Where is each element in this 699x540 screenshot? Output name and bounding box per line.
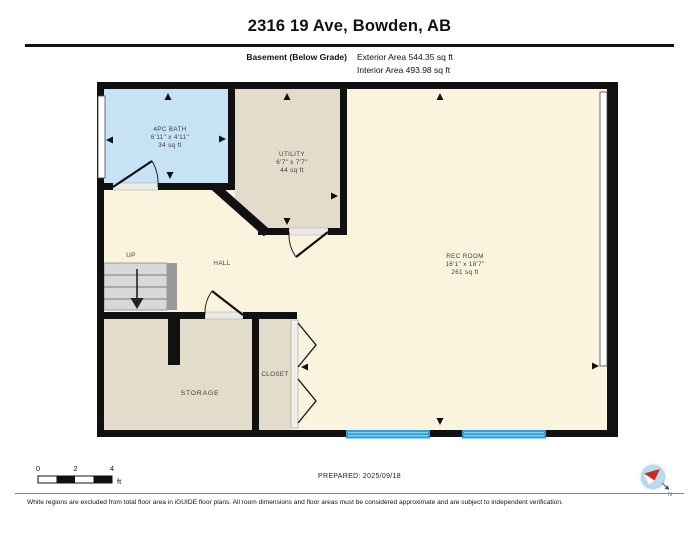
disclaimer-text: White regions are excluded from total fl… bbox=[27, 499, 687, 506]
storage-door-opening bbox=[205, 312, 243, 319]
up-label: UP bbox=[126, 252, 135, 259]
rec-room-area: 261 sq ft bbox=[451, 269, 478, 276]
window-left bbox=[98, 96, 105, 178]
floor-plan-page: 2316 19 Ave, Bowden, AB Basement (Below … bbox=[0, 0, 699, 540]
scale-tick-2: 2 bbox=[73, 464, 77, 473]
scale-tick-0: 0 bbox=[36, 464, 40, 473]
bath-door-opening bbox=[113, 183, 158, 190]
utility-dims: 6'7" x 7'7" bbox=[276, 159, 307, 166]
utility-area: 44 sq ft bbox=[280, 167, 303, 174]
hall-label: HALL bbox=[213, 260, 230, 267]
rec-room-dims: 16'1" x 18'7" bbox=[445, 261, 484, 268]
bath-area: 34 sq ft bbox=[158, 142, 181, 149]
scale-bar: 0 2 4 ft bbox=[36, 464, 122, 486]
scale-unit: ft bbox=[117, 477, 122, 486]
storage-label: STORAGE bbox=[181, 390, 220, 397]
scale-tick-4: 4 bbox=[110, 464, 114, 473]
footer-divider bbox=[15, 493, 684, 494]
bath-dims: 6'11" x 4'11" bbox=[151, 134, 189, 141]
floor-plan-drawing: 4PC BATH 6'11" x 4'11" 34 sq ft UTILITY … bbox=[0, 0, 699, 540]
stairs bbox=[104, 263, 177, 310]
utility-door-opening bbox=[289, 228, 328, 235]
window-bottom-1 bbox=[346, 430, 430, 439]
window-right bbox=[600, 92, 607, 366]
closet-label: CLOSET bbox=[261, 371, 288, 378]
window-bottom-2 bbox=[462, 430, 546, 439]
bath-label: 4PC BATH bbox=[153, 126, 186, 133]
utility-label: UTILITY bbox=[279, 151, 305, 158]
prepared-date: PREPARED: 2025/09/18 bbox=[318, 473, 401, 480]
rec-room-label: REC ROOM bbox=[446, 253, 483, 260]
